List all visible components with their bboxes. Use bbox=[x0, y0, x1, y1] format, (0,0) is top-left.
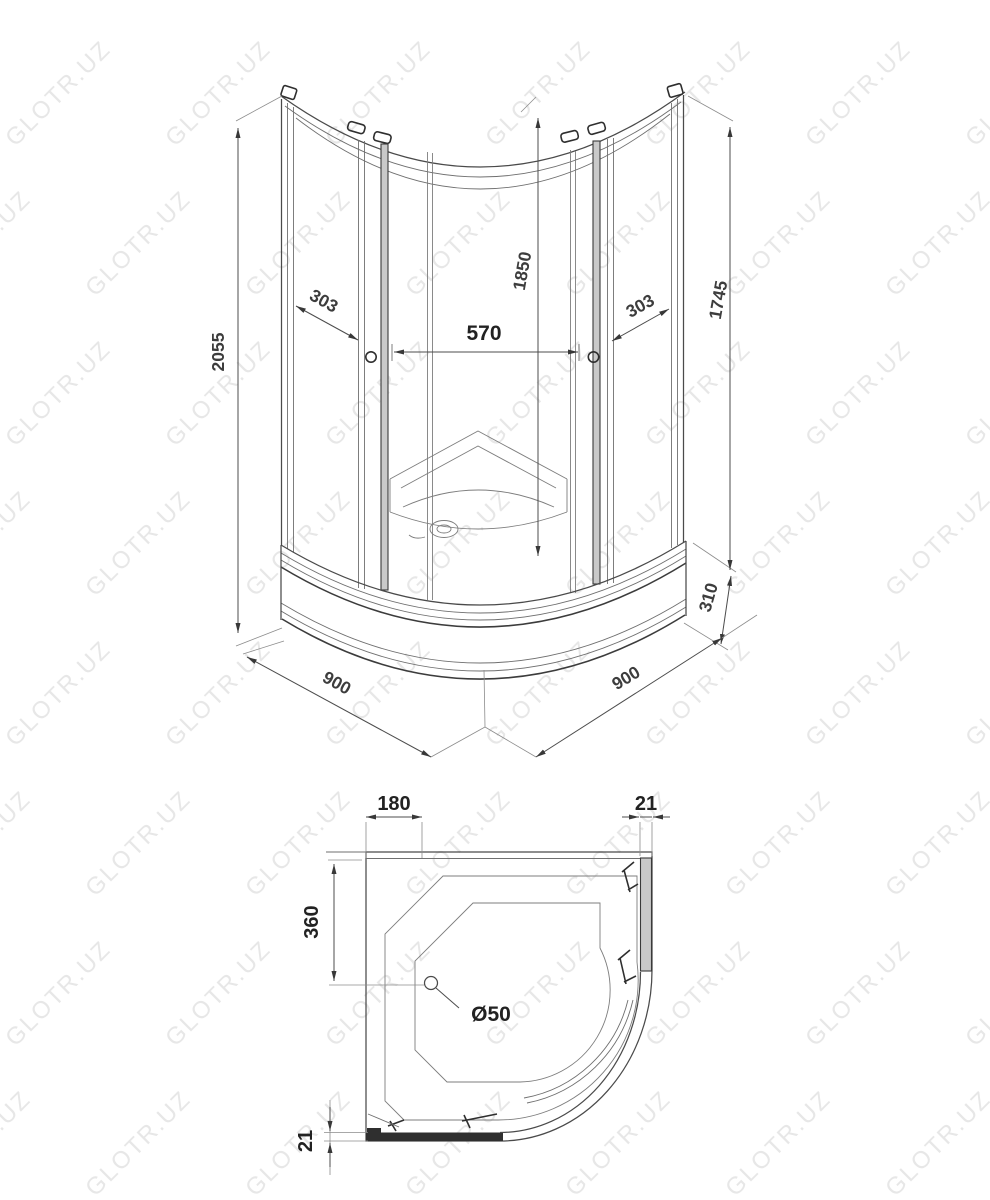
left-door-post bbox=[359, 140, 389, 590]
plan-corner-block bbox=[367, 1128, 381, 1141]
plan-outline bbox=[366, 852, 652, 1141]
dim-tray-height: 310 bbox=[684, 576, 731, 650]
dim-left-panel: 303 bbox=[296, 285, 358, 340]
dim-label-profile-bottom: 21 bbox=[295, 1130, 317, 1152]
plan-view: Ø50 180 21 360 bbox=[295, 793, 670, 1175]
dim-wall-to-seat: 180 bbox=[366, 793, 422, 858]
plan-bottom-profile bbox=[366, 1133, 503, 1142]
door-handles bbox=[366, 344, 599, 362]
dim-door-opening: 570 bbox=[394, 322, 578, 352]
dim-label-tray-height: 310 bbox=[695, 580, 722, 614]
dim-inner-height: 1850 bbox=[509, 97, 538, 556]
left-wall-profile bbox=[282, 99, 294, 552]
dim-label-drain-diameter: Ø50 bbox=[471, 1003, 511, 1026]
dim-glass-height: 1745 bbox=[688, 96, 736, 572]
dim-label-wall-to-seat: 180 bbox=[377, 793, 410, 815]
dim-label-right-panel: 303 bbox=[622, 290, 657, 322]
right-wall-profile bbox=[672, 95, 684, 548]
plan-drain: Ø50 bbox=[425, 977, 511, 1027]
technical-drawing-page: GLOTR.UZGLOTR.UZGLOTR.UZGLOTR.UZGLOTR.UZ… bbox=[0, 0, 990, 1200]
dim-total-height: 2055 bbox=[208, 96, 282, 646]
dim-label-profile-top: 21 bbox=[635, 793, 657, 815]
dim-label-base-width: 900 bbox=[608, 662, 644, 694]
tray-interior bbox=[390, 431, 567, 538]
plan-right-profile bbox=[641, 858, 652, 971]
dim-drain-offset: 360 bbox=[301, 860, 424, 985]
plan-hardware bbox=[368, 862, 638, 1131]
dim-label-door-opening: 570 bbox=[466, 322, 501, 345]
dim-label-base-depth: 900 bbox=[319, 667, 354, 699]
plan-door-arcs bbox=[500, 972, 641, 1133]
dim-profile-bottom: 21 bbox=[295, 1100, 368, 1175]
dim-label-drain-offset: 360 bbox=[301, 905, 323, 938]
shower-tray bbox=[281, 541, 686, 679]
top-rail bbox=[280, 83, 685, 189]
shower-cabin-drawing: 2055 1850 1745 303 bbox=[0, 0, 990, 1200]
dim-profile-top: 21 bbox=[622, 793, 670, 856]
dim-label-left-panel: 303 bbox=[306, 285, 341, 317]
plan-tray-inner bbox=[385, 876, 638, 1120]
dim-label-glass-height: 1745 bbox=[705, 279, 732, 321]
dim-right-panel: 303 bbox=[612, 290, 669, 341]
dim-label-inner-height: 1850 bbox=[509, 250, 536, 292]
front-elevation-view: 2055 1850 1745 303 bbox=[208, 83, 757, 757]
dim-label-total-height: 2055 bbox=[208, 332, 228, 371]
